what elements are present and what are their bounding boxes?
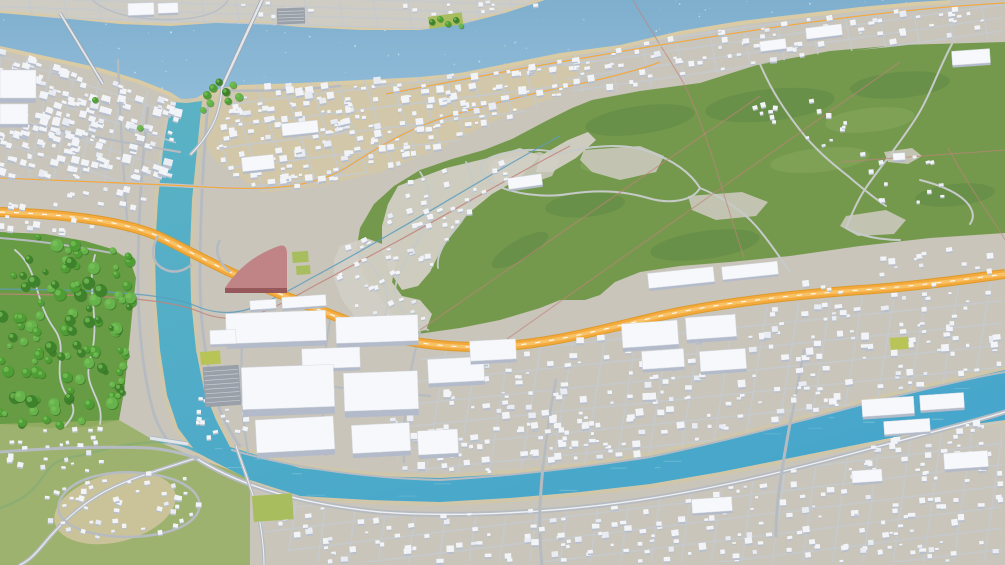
building: [281, 167, 286, 171]
building: [953, 498, 958, 503]
building: [400, 121, 406, 127]
large-building: [343, 371, 419, 418]
building: [354, 146, 361, 152]
building: [888, 546, 892, 550]
building: [297, 91, 304, 98]
building: [460, 100, 467, 108]
building: [695, 437, 699, 441]
building: [721, 37, 728, 45]
building: [387, 248, 391, 252]
building: [860, 548, 866, 555]
building: [990, 341, 998, 349]
building: [777, 409, 785, 416]
building: [321, 507, 325, 510]
building: [119, 201, 127, 208]
building: [802, 507, 810, 515]
building: [978, 503, 985, 509]
building: [61, 466, 66, 470]
building: [275, 147, 283, 155]
building: [591, 432, 594, 436]
building: [697, 61, 703, 66]
building: [796, 368, 804, 376]
building: [718, 46, 722, 51]
building: [921, 307, 926, 313]
building: [380, 80, 386, 85]
building: [587, 74, 595, 83]
building: [627, 395, 633, 400]
building: [576, 65, 580, 68]
building: [806, 404, 812, 411]
building: [601, 531, 609, 540]
building: [90, 225, 95, 230]
building: [764, 332, 771, 340]
building: [198, 397, 203, 401]
building: [368, 154, 374, 160]
building: [365, 531, 368, 534]
building: [253, 120, 259, 125]
large-building: [241, 364, 335, 416]
building: [806, 347, 814, 357]
building: [492, 4, 495, 8]
building: [276, 90, 282, 97]
building: [688, 552, 692, 556]
building: [910, 529, 914, 533]
building: [643, 509, 649, 516]
building: [484, 439, 490, 445]
building: [899, 10, 907, 19]
building: [977, 425, 981, 428]
building: [176, 496, 182, 502]
building: [574, 456, 578, 460]
building: [908, 513, 916, 519]
building: [829, 139, 833, 142]
building: [183, 492, 187, 496]
building: [660, 391, 663, 395]
building: [997, 497, 1003, 504]
building: [810, 373, 815, 377]
building: [823, 366, 830, 373]
building: [488, 102, 497, 112]
building: [940, 195, 944, 199]
building: [634, 49, 639, 55]
large-building: [128, 3, 154, 18]
building: [766, 532, 773, 538]
building: [97, 427, 103, 433]
building: [922, 252, 927, 257]
building: [827, 287, 832, 292]
building: [596, 455, 603, 461]
building: [489, 8, 494, 12]
building: [963, 368, 967, 372]
building: [294, 532, 301, 540]
large-building: [685, 314, 737, 343]
building: [758, 401, 762, 404]
building: [9, 440, 14, 444]
building: [580, 396, 588, 405]
building: [81, 489, 87, 496]
building: [421, 200, 427, 206]
building: [408, 523, 415, 530]
building: [258, 12, 263, 18]
building: [898, 524, 903, 529]
building: [475, 121, 479, 125]
building: [895, 447, 901, 453]
building: [375, 540, 379, 545]
building: [931, 282, 936, 287]
building: [550, 447, 553, 451]
building: [172, 523, 178, 529]
building: [802, 312, 808, 318]
building: [688, 358, 696, 365]
building: [632, 440, 640, 449]
building: [424, 534, 430, 540]
building: [304, 91, 313, 101]
building: [496, 84, 503, 91]
building: [388, 162, 394, 170]
building: [927, 190, 932, 195]
building: [278, 522, 282, 527]
building: [566, 539, 571, 544]
building: [481, 456, 490, 465]
building: [200, 420, 205, 426]
building: [305, 174, 313, 183]
building: [69, 120, 75, 126]
building: [881, 305, 890, 313]
building: [507, 558, 513, 563]
building: [925, 444, 931, 449]
building: [485, 553, 492, 559]
building: [561, 558, 567, 563]
building: [724, 426, 729, 431]
building: [89, 520, 93, 524]
building: [7, 457, 13, 463]
building: [267, 107, 275, 114]
building: [45, 496, 50, 500]
building: [511, 70, 519, 78]
building: [889, 532, 892, 535]
building: [826, 113, 831, 119]
building: [610, 401, 614, 405]
building: [412, 8, 417, 13]
building: [685, 499, 691, 505]
building: [248, 129, 254, 135]
building: [428, 135, 434, 141]
building: [547, 361, 554, 368]
building: [749, 347, 757, 355]
building: [236, 110, 240, 114]
building: [800, 495, 806, 500]
building: [752, 374, 756, 378]
building: [175, 505, 179, 510]
building: [430, 263, 434, 267]
building: [526, 372, 529, 375]
building: [764, 28, 769, 33]
building: [871, 446, 876, 451]
building: [305, 513, 312, 520]
building: [934, 476, 938, 481]
building: [505, 395, 509, 399]
building: [575, 536, 582, 544]
building: [916, 200, 920, 204]
building: [950, 321, 955, 326]
building: [737, 379, 745, 389]
building: [742, 38, 749, 46]
building: [562, 436, 567, 442]
building: [770, 57, 777, 64]
building: [986, 268, 992, 275]
building: [888, 258, 895, 266]
building: [926, 340, 930, 344]
building: [469, 445, 473, 450]
building: [951, 519, 958, 528]
building: [919, 497, 925, 505]
building: [442, 223, 448, 229]
building: [536, 89, 544, 97]
building: [651, 534, 655, 538]
building: [397, 83, 402, 88]
building: [726, 402, 732, 407]
building: [864, 463, 868, 466]
building: [291, 103, 296, 108]
building: [5, 215, 9, 219]
building: [455, 220, 460, 225]
building: [666, 406, 674, 414]
building: [436, 559, 444, 565]
building: [877, 384, 883, 390]
building: [386, 255, 392, 260]
building: [170, 509, 176, 515]
building: [561, 543, 566, 547]
building: [395, 138, 399, 142]
building: [916, 15, 921, 19]
building: [528, 391, 532, 396]
large-building: [861, 396, 914, 419]
building: [403, 548, 411, 556]
building: [40, 465, 45, 471]
building: [908, 381, 912, 385]
building: [221, 157, 226, 163]
building: [692, 423, 698, 430]
building: [728, 486, 733, 490]
building: [345, 107, 351, 115]
building: [720, 549, 725, 555]
building: [528, 412, 536, 420]
building: [266, 1, 271, 5]
building: [303, 164, 309, 169]
building: [318, 175, 327, 184]
building: [71, 218, 77, 225]
building: [303, 524, 308, 529]
building: [675, 58, 682, 65]
building: [471, 406, 475, 410]
large-building: [920, 392, 965, 413]
building: [925, 452, 932, 460]
building: [884, 182, 888, 186]
building: [891, 349, 898, 358]
building: [537, 68, 541, 72]
building: [772, 120, 776, 124]
building: [388, 130, 392, 134]
building: [868, 21, 875, 26]
building: [341, 155, 349, 162]
building: [493, 427, 499, 433]
building: [225, 420, 229, 424]
large-building: [699, 348, 747, 375]
building: [606, 84, 613, 92]
building: [412, 111, 417, 117]
building: [581, 72, 585, 76]
large-building: [158, 3, 178, 16]
building: [626, 417, 633, 424]
building: [638, 559, 643, 564]
building: [738, 533, 742, 537]
building: [435, 124, 441, 129]
building: [299, 174, 303, 178]
building: [417, 126, 425, 134]
building: [943, 332, 950, 338]
building: [750, 508, 753, 512]
building: [417, 462, 425, 471]
large-building: [470, 339, 517, 365]
building: [294, 184, 300, 190]
building: [64, 457, 68, 462]
large-building: [943, 450, 988, 472]
large-building: [255, 416, 335, 459]
building: [597, 334, 605, 342]
building: [62, 504, 67, 508]
building: [569, 353, 577, 360]
building: [786, 47, 793, 54]
building: [889, 38, 897, 46]
building: [459, 438, 463, 442]
building: [502, 400, 508, 406]
building: [196, 421, 200, 426]
building: [725, 536, 731, 542]
building: [357, 136, 364, 143]
building: [889, 443, 895, 451]
building: [676, 421, 685, 430]
building: [411, 433, 418, 441]
building: [882, 532, 890, 540]
building: [821, 285, 826, 290]
building: [77, 443, 83, 449]
building: [401, 95, 410, 105]
building: [953, 435, 958, 440]
building: [635, 408, 644, 418]
building: [946, 559, 950, 563]
building: [607, 390, 612, 395]
building: [633, 83, 638, 88]
building: [127, 480, 131, 484]
building: [893, 9, 899, 15]
building: [453, 111, 459, 117]
large-building: [226, 310, 327, 349]
building: [122, 524, 126, 530]
building: [320, 82, 328, 91]
building: [136, 490, 140, 494]
building: [250, 172, 257, 180]
building: [18, 440, 22, 444]
building: [261, 137, 265, 142]
building: [791, 469, 797, 474]
building: [838, 291, 842, 295]
building: [772, 326, 779, 334]
building: [584, 444, 589, 448]
building: [877, 31, 883, 37]
building: [530, 452, 533, 456]
building: [837, 331, 843, 339]
building: [456, 542, 463, 549]
building: [832, 316, 837, 322]
building: [436, 85, 444, 95]
building: [326, 92, 334, 101]
building: [295, 111, 303, 119]
building: [342, 118, 350, 127]
building: [518, 86, 527, 97]
building: [629, 371, 633, 376]
building: [235, 430, 241, 435]
map-viewport[interactable]: [0, 0, 1005, 565]
building: [929, 547, 935, 554]
building: [644, 382, 651, 390]
building: [639, 69, 646, 77]
building: [869, 169, 874, 175]
building: [517, 429, 522, 433]
building: [457, 89, 461, 93]
building: [545, 429, 551, 435]
building: [320, 128, 325, 133]
building: [286, 164, 292, 169]
building: [220, 124, 227, 132]
building: [446, 545, 454, 554]
building: [861, 333, 869, 342]
building: [528, 509, 533, 514]
building: [760, 111, 764, 115]
building: [504, 85, 508, 88]
building: [974, 368, 979, 373]
building: [355, 304, 359, 308]
building: [952, 315, 958, 320]
building: [633, 450, 641, 459]
building: [238, 123, 242, 127]
building: [447, 74, 453, 80]
building: [698, 542, 706, 552]
building: [596, 440, 599, 443]
building: [797, 530, 803, 535]
building: [947, 441, 952, 445]
building: [244, 96, 248, 99]
building: [447, 3, 450, 7]
building: [162, 492, 167, 497]
building: [373, 311, 378, 316]
building: [928, 498, 933, 503]
building: [639, 529, 646, 535]
building: [946, 247, 953, 254]
building: [840, 310, 847, 317]
building: [939, 13, 944, 17]
building: [919, 263, 924, 268]
building: [52, 228, 56, 233]
building: [966, 424, 970, 428]
large-building: [210, 330, 237, 347]
building: [680, 72, 686, 77]
building: [649, 377, 654, 381]
building: [477, 444, 483, 451]
building: [481, 10, 485, 15]
building: [390, 418, 396, 423]
building: [774, 387, 780, 393]
building: [618, 63, 624, 68]
